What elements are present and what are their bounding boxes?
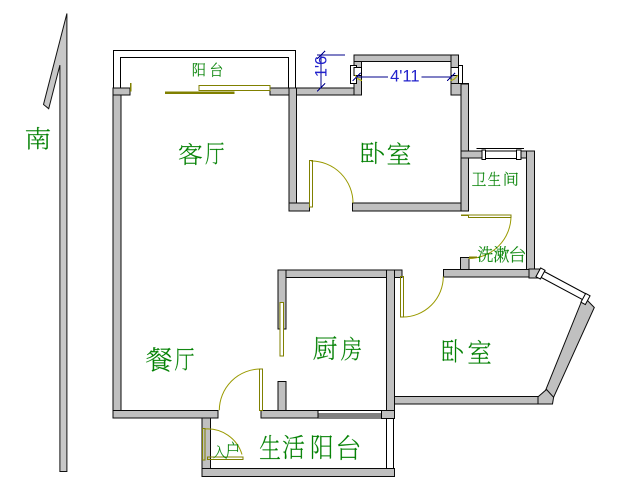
svg-text:1'6: 1'6: [313, 56, 331, 78]
svg-text:4'11: 4'11: [390, 67, 419, 85]
